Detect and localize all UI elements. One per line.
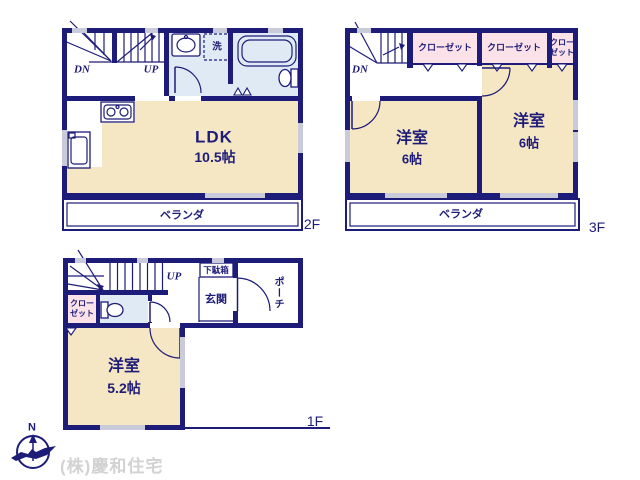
1f-up-label: UP [167,272,182,283]
3f-closet-left-label: クローゼット [418,44,472,53]
1f-room-floor [68,328,180,425]
1f-room-size: 5.2帖 [107,381,140,395]
company-name: (株)慶和住宅 [60,452,163,477]
2f-dn-label: DN [74,65,90,76]
floor-plan-2f [62,21,303,230]
entrance-label: 玄関 [205,295,227,306]
3f-room-right-size: 6帖 [519,137,539,150]
2f-laundry-label: 洗 [212,42,222,52]
1f-floor-label: 1F [307,414,323,428]
3f-closet-small-label-1: クロー [550,39,574,47]
2f-toilet-icon [291,69,298,87]
3f-room-left-label: 洋室 [396,131,428,147]
floorplan-page: DN UP 洗 LDK 10.5帖 ベランダ 2F DN クローゼット クローゼ… [0,0,640,480]
floorplan-drawing [0,0,640,480]
2f-ldk-size-label: 10.5帖 [194,150,235,164]
2f-floor-label: 2F [304,217,320,231]
2f-veranda-label: ベランダ [160,211,204,222]
2f-ldk-floor [135,101,298,193]
shoe-cabinet-label: 下駄箱 [203,266,229,275]
porch-label: ポーチ [272,277,282,310]
floor-plan-1f [63,250,330,430]
1f-closet-label-1: クロー [70,300,94,308]
2f-ldk-label: LDK [195,129,233,146]
compass-north-label: N [28,423,36,434]
compass-icon [11,434,56,468]
washbasin-icon [172,34,200,56]
3f-closet-small-label-2: ゼット [550,49,574,57]
2f-up-label: UP [144,65,159,76]
3f-room-left-size: 6帖 [402,153,422,166]
3f-closet-mid-label: クローゼット [487,44,541,53]
1f-closet-label-2: ゼット [70,310,94,318]
3f-floor-label: 3F [589,220,605,234]
3f-veranda-label: ベランダ [439,210,483,221]
3f-room-right-label: 洋室 [513,114,545,130]
3f-dn-label: DN [352,65,368,76]
1f-room-label: 洋室 [108,359,140,375]
3f-room-left-floor [350,101,477,193]
